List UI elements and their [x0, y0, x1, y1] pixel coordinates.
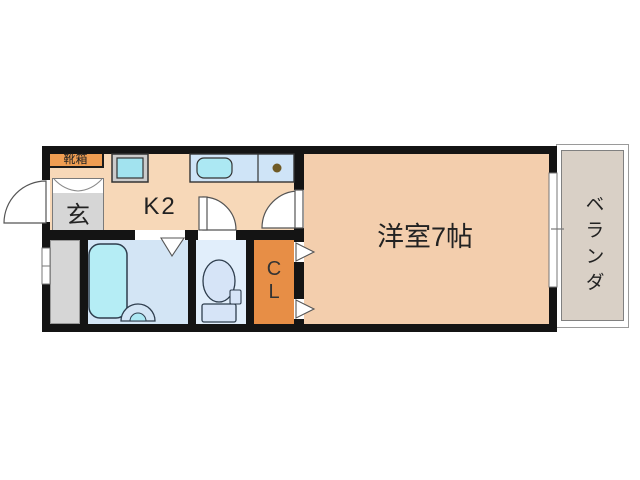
shoe-cabinet-label: 靴箱	[47, 149, 104, 167]
toilet-handle	[230, 290, 241, 304]
closet-label: C L	[254, 248, 294, 314]
veranda-label: ベランダ	[579, 165, 607, 327]
room-door-swing	[262, 191, 299, 228]
sliding-window-right	[549, 173, 557, 287]
entrance-step-chevron	[54, 179, 102, 191]
toilet-tank	[202, 304, 236, 322]
closet-door-mark-2	[296, 300, 314, 318]
toilet-door-swing	[203, 197, 236, 230]
entrance-label: 玄	[52, 192, 104, 232]
floor-plan: 靴箱 玄 K2 C L 洋室7帖 ベランダ	[0, 0, 640, 480]
main-room-label: 洋室7帖	[320, 214, 530, 254]
entrance-door-swing	[4, 181, 46, 223]
bathtub	[89, 244, 127, 318]
toilet-door-leaf	[199, 197, 207, 230]
closet-label-l: L	[268, 281, 279, 304]
kitchen-sink	[197, 158, 232, 178]
washing-machine-tub	[117, 158, 143, 178]
bathroom-folding-door	[161, 238, 184, 256]
closet-label-c: C	[267, 258, 281, 281]
kitchen-label: K2	[120, 190, 200, 224]
gas-burner	[273, 164, 282, 173]
room-door-leaf	[295, 190, 303, 228]
closet-door-mark-1	[296, 243, 314, 261]
